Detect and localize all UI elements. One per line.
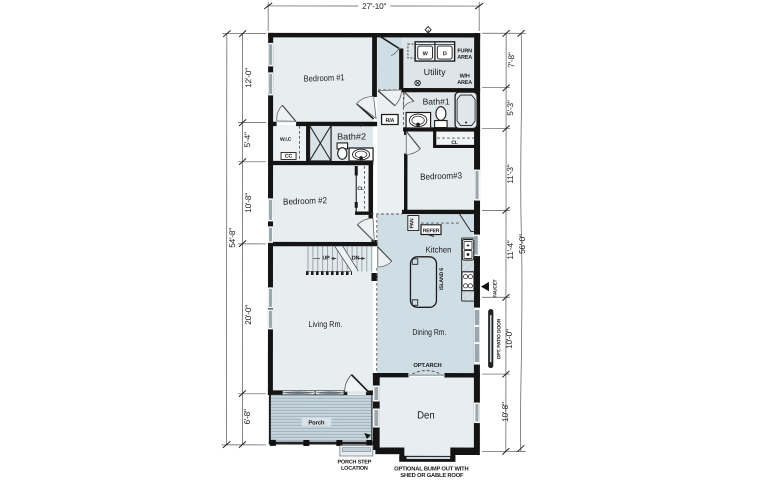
svg-text:REFER: REFER: [423, 228, 440, 234]
svg-text:OPT. PATIO DOOR: OPT. PATIO DOOR: [496, 318, 502, 359]
svg-text:CL: CL: [451, 140, 457, 146]
svg-text:CC: CC: [285, 154, 293, 160]
svg-text:OPT.ARCH: OPT.ARCH: [413, 362, 441, 369]
svg-text:7'-8": 7'-8": [507, 52, 516, 68]
svg-text:Kitchen: Kitchen: [425, 245, 451, 255]
svg-text:5'-3": 5'-3": [506, 100, 515, 116]
svg-text:LOCATION: LOCATION: [341, 466, 368, 472]
svg-text:D: D: [443, 51, 447, 57]
svg-text:SHED OR GABLE ROOF: SHED OR GABLE ROOF: [400, 472, 464, 479]
svg-text:Bedroom#3: Bedroom#3: [420, 170, 462, 181]
svg-text:Dining Rm.: Dining Rm.: [412, 327, 446, 337]
svg-text:CL: CL: [357, 186, 363, 192]
svg-text:PAN: PAN: [409, 218, 415, 228]
svg-text:6'-8": 6'-8": [243, 409, 252, 425]
svg-text:10'-0": 10'-0": [505, 329, 514, 349]
svg-text:AREA: AREA: [457, 80, 472, 86]
svg-text:Living Rm.: Living Rm.: [308, 319, 342, 329]
svg-text:54'-8": 54'-8": [228, 228, 237, 248]
svg-text:Den: Den: [417, 410, 435, 422]
svg-text:UP: UP: [322, 255, 330, 261]
svg-text:Utility: Utility: [424, 67, 447, 77]
svg-text:12'-0": 12'-0": [244, 68, 253, 88]
svg-text:10'-8": 10'-8": [501, 402, 510, 422]
svg-text:11'-3": 11'-3": [506, 164, 515, 183]
svg-text:OPTIONAL BUMP OUT WITH: OPTIONAL BUMP OUT WITH: [394, 466, 468, 473]
svg-text:AREA: AREA: [457, 55, 472, 61]
svg-text:27'-10": 27'-10": [362, 2, 386, 11]
svg-text:PORCH STEP: PORCH STEP: [337, 459, 371, 465]
svg-text:W.I.C: W.I.C: [280, 137, 292, 143]
svg-text:DN: DN: [352, 255, 360, 261]
svg-text:ISLAND 6: ISLAND 6: [439, 268, 445, 290]
svg-text:W/H: W/H: [460, 74, 470, 80]
svg-text:56'-0": 56'-0": [518, 234, 527, 254]
svg-text:20'-0": 20'-0": [244, 305, 253, 325]
svg-text:Bath#2: Bath#2: [337, 131, 366, 141]
svg-text:FURN: FURN: [457, 48, 472, 54]
svg-text:5'-4": 5'-4": [243, 132, 252, 148]
svg-text:Bath#1: Bath#1: [423, 97, 450, 107]
svg-text:Porch: Porch: [308, 419, 325, 426]
svg-text:Bedroom #1: Bedroom #1: [303, 72, 344, 83]
svg-text:FAUCET: FAUCET: [492, 279, 498, 297]
svg-text:11'-4": 11'-4": [506, 240, 515, 259]
svg-text:Bedroom #2: Bedroom #2: [283, 195, 327, 207]
svg-text:10'-8": 10'-8": [244, 193, 253, 213]
svg-text:R/A: R/A: [385, 118, 394, 124]
